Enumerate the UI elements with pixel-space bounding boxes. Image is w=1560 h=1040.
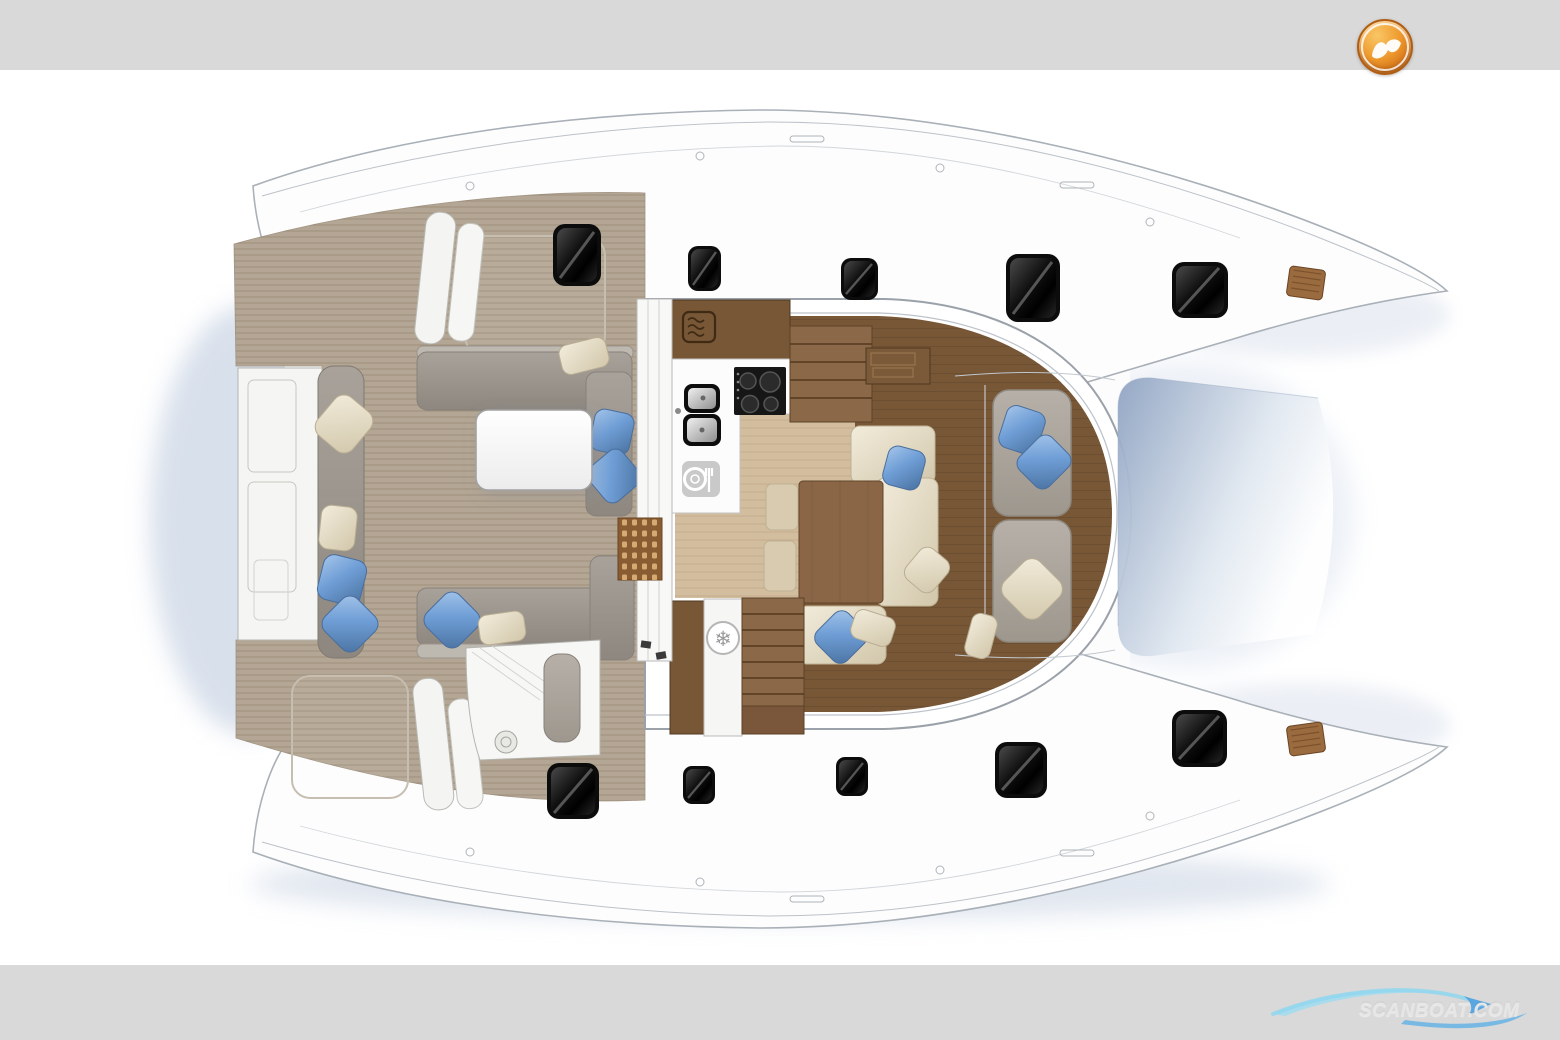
cooktop-icon	[734, 367, 786, 415]
bow-vent	[1286, 266, 1326, 301]
helm-station	[466, 640, 600, 760]
winch-icon	[495, 731, 517, 753]
pillow-cream	[477, 610, 527, 646]
galley-counter-wood	[672, 300, 790, 359]
staircase-up	[790, 326, 872, 422]
trampoline	[1118, 378, 1333, 656]
logo-bird-glyph	[1359, 21, 1415, 77]
watermark-text: SCANBOAT.COM	[1359, 1000, 1519, 1022]
svg-text:❄: ❄	[714, 627, 732, 651]
deck-hatch	[688, 246, 721, 291]
deck-hatch	[683, 766, 715, 804]
dinette-cushion	[766, 484, 798, 530]
deck-locker-outline	[292, 676, 408, 798]
navigation-table	[866, 348, 930, 384]
transom-walkway	[238, 368, 322, 640]
pillow-cream	[318, 504, 358, 552]
deck-hatch	[1006, 254, 1060, 322]
deck-hatch	[841, 258, 878, 300]
screenshot-stage: ❄	[0, 0, 1560, 1040]
deck-hatch	[1172, 710, 1227, 767]
deck-hatch	[547, 763, 599, 819]
deck-hatch	[995, 742, 1047, 798]
dining-icon	[682, 461, 720, 497]
watermark: SCANBOAT.COM	[1255, 972, 1555, 1036]
deck-hatch	[553, 224, 601, 286]
staircase-down	[742, 598, 804, 734]
fridge-snowflake-icon: ❄	[707, 622, 739, 654]
bow-vent	[1286, 722, 1326, 757]
floorplan-graphic: ❄	[0, 0, 1560, 1040]
saloon: ❄	[618, 299, 1131, 736]
scanboat-logo-icon	[1357, 19, 1413, 75]
dinette-cushion	[764, 541, 796, 591]
doormat	[618, 518, 662, 580]
deck-hatch	[1172, 262, 1228, 318]
deck-hatch	[836, 757, 868, 796]
helm-seat	[544, 654, 580, 742]
sliding-door	[637, 299, 672, 661]
fridge-cabinet: ❄	[670, 599, 742, 736]
cockpit-table	[476, 410, 596, 495]
